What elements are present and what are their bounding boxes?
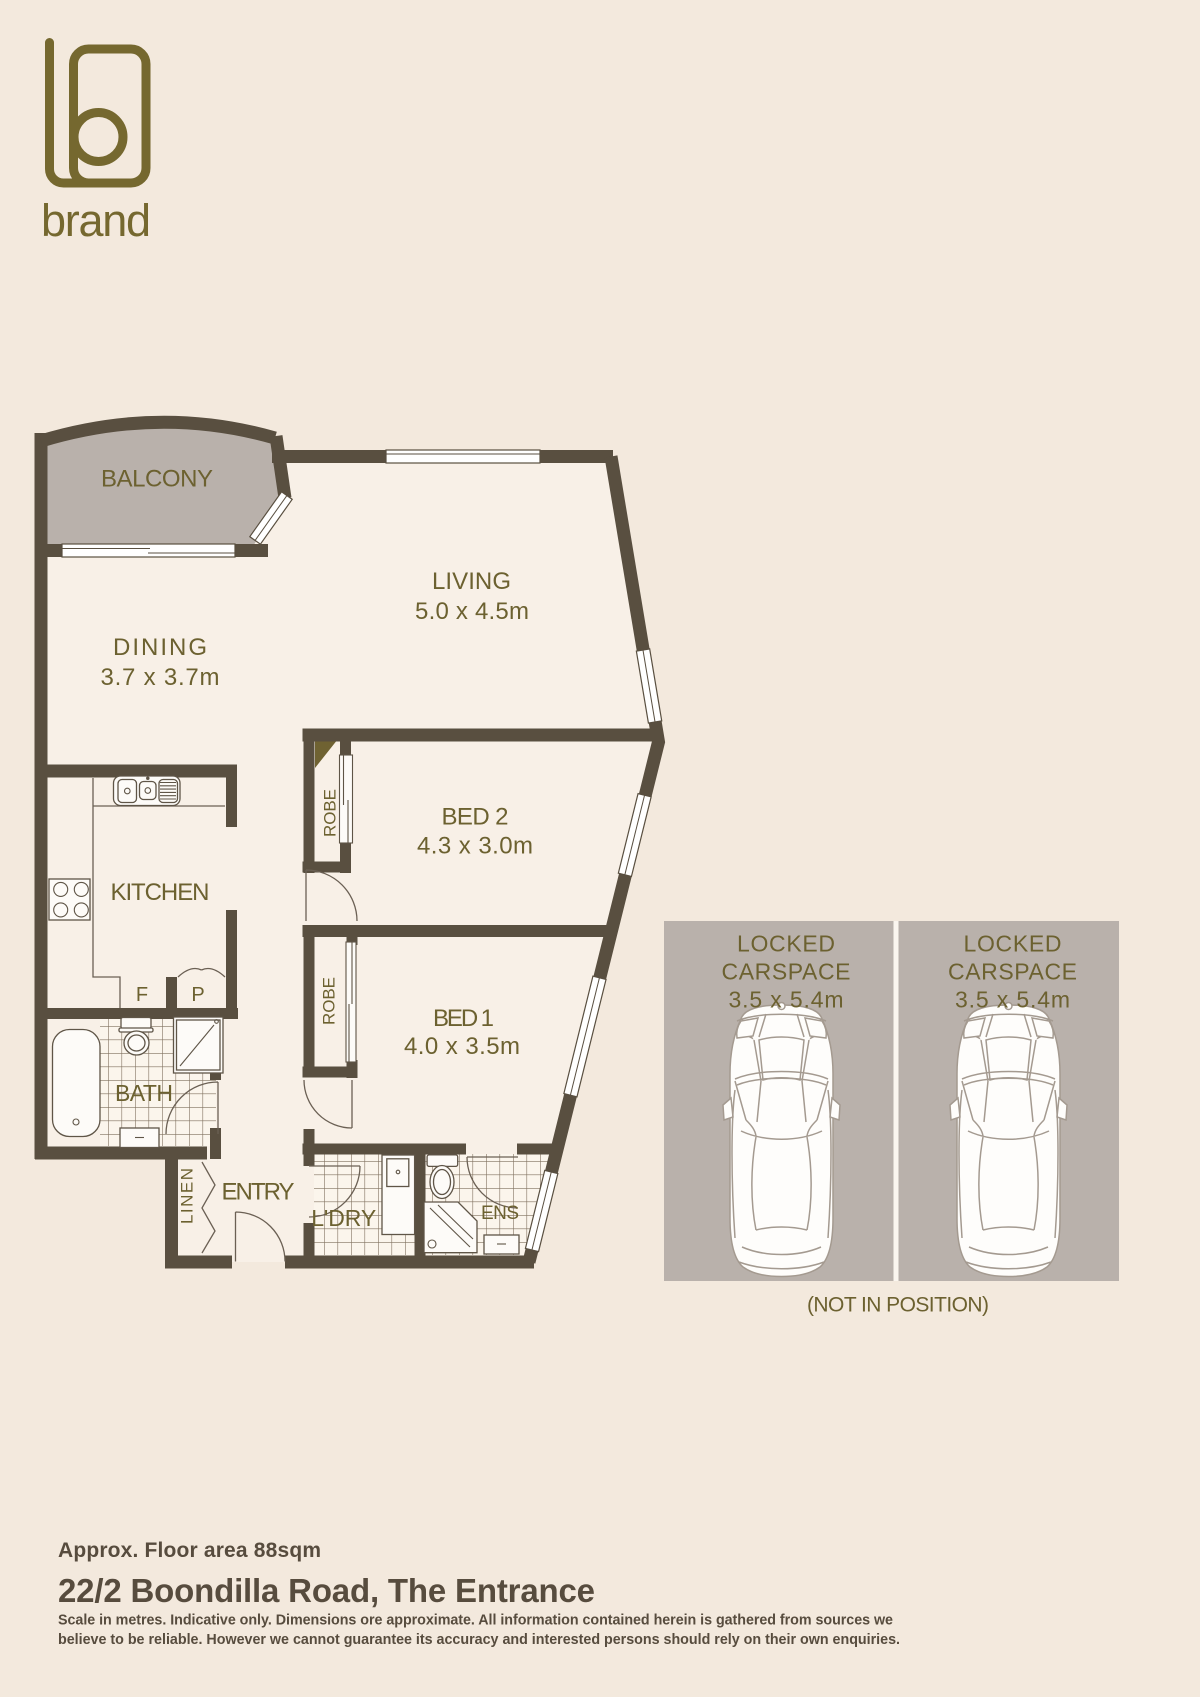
svg-text:LOCKED: LOCKED — [964, 931, 1062, 957]
svg-text:LINEN: LINEN — [177, 1168, 196, 1224]
svg-text:F: F — [136, 984, 148, 1006]
svg-text:KITCHEN: KITCHEN — [111, 879, 210, 906]
svg-text:ENTRY: ENTRY — [222, 1179, 295, 1206]
svg-text:3.5 x 5.4m: 3.5 x 5.4m — [729, 987, 844, 1013]
svg-text:L'DRY: L'DRY — [311, 1205, 376, 1231]
svg-text:Scale in metres. Indicative on: Scale in metres. Indicative only. Dimens… — [58, 1613, 893, 1629]
svg-text:ROBE: ROBE — [319, 977, 338, 1025]
svg-text:5.0 x 4.5m: 5.0 x 4.5m — [415, 598, 529, 625]
svg-text:LOCKED: LOCKED — [737, 931, 835, 957]
svg-text:BED 1: BED 1 — [433, 1005, 494, 1032]
svg-text:4.0 x 3.5m: 4.0 x 3.5m — [404, 1033, 520, 1060]
svg-text:CARSPACE: CARSPACE — [722, 959, 851, 985]
svg-text:ENS: ENS — [481, 1203, 519, 1224]
svg-text:BATH: BATH — [115, 1080, 173, 1106]
svg-text:DINING: DINING — [113, 634, 207, 661]
svg-text:believe to be reliable. Howeve: believe to be reliable. However we canno… — [58, 1632, 900, 1648]
svg-text:BED 2: BED 2 — [442, 804, 509, 831]
svg-text:BALCONY: BALCONY — [101, 466, 214, 493]
svg-text:4.3 x 3.0m: 4.3 x 3.0m — [417, 833, 533, 860]
svg-text:P: P — [191, 984, 204, 1006]
svg-text:3.5 x 5.4m: 3.5 x 5.4m — [955, 987, 1070, 1013]
svg-text:3.7 x 3.7m: 3.7 x 3.7m — [101, 664, 220, 691]
svg-text:Approx. Floor area 88sqm: Approx. Floor area 88sqm — [58, 1539, 321, 1562]
svg-text:22/2 Boondilla Road, The Entra: 22/2 Boondilla Road, The Entrance — [58, 1572, 595, 1609]
svg-text:CARSPACE: CARSPACE — [948, 959, 1077, 985]
svg-text:ROBE: ROBE — [320, 789, 339, 837]
svg-text:brand: brand — [41, 195, 151, 246]
svg-text:LIVING: LIVING — [432, 568, 511, 595]
svg-text:(NOT IN POSITION): (NOT IN POSITION) — [807, 1294, 989, 1317]
